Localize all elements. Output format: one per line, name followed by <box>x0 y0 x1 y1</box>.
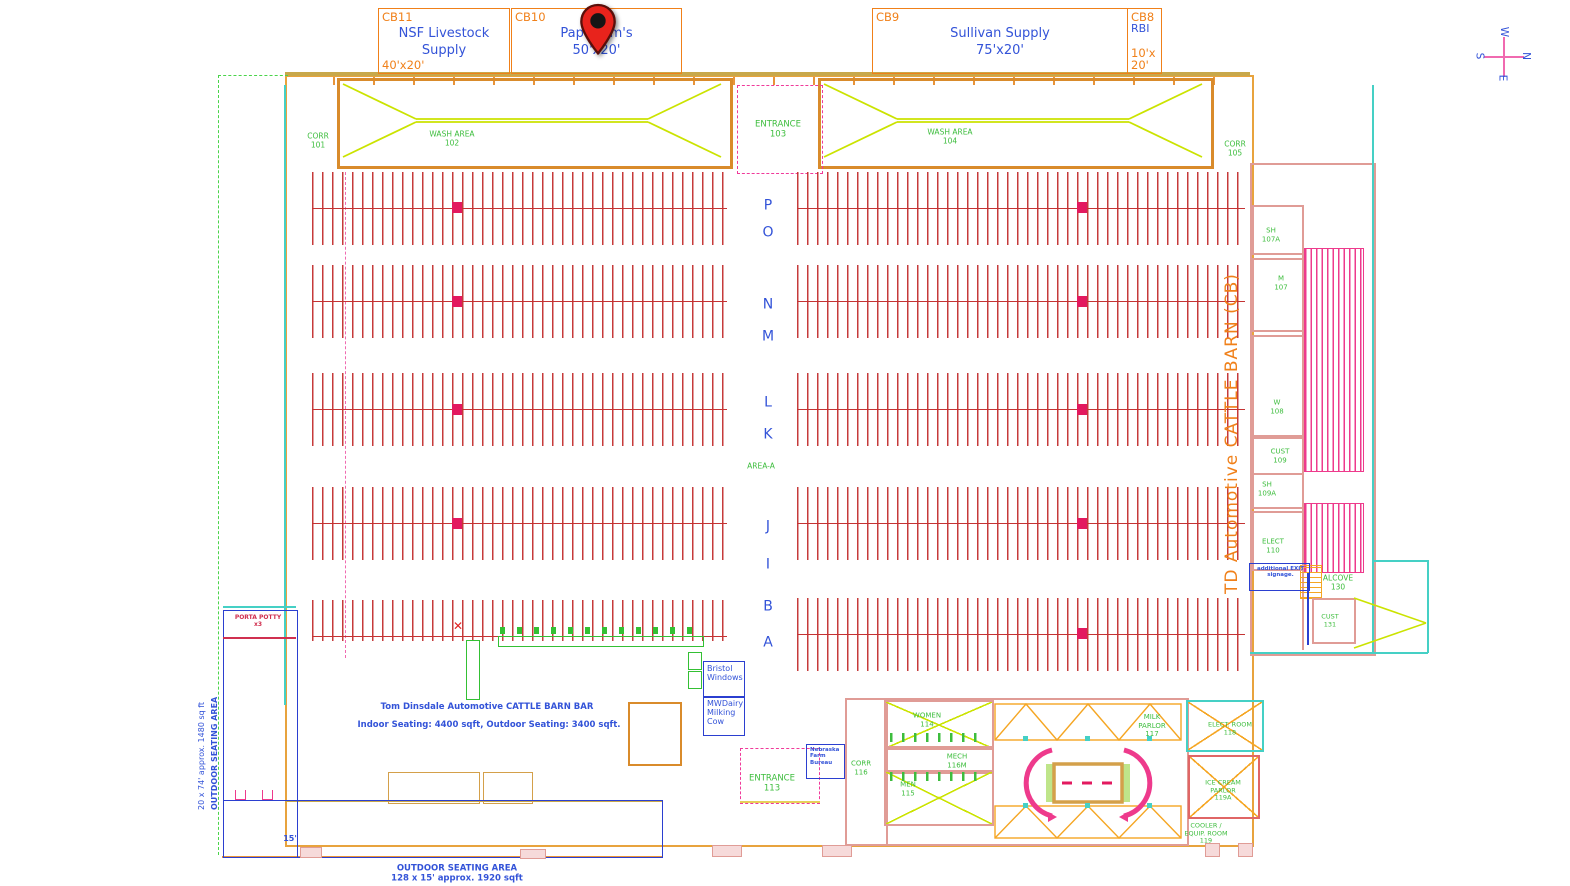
door-opening <box>520 849 546 859</box>
outer-cyan-wall-top-right <box>1372 560 1428 562</box>
entrance-103-label: ENTRANCE103 <box>755 110 801 141</box>
booth-bristol-windows[interactable]: Bristol Windows <box>703 661 745 698</box>
service-counter <box>688 652 702 670</box>
bleacher-seating-upper <box>1304 248 1364 472</box>
booth-id: CB11 <box>382 10 413 24</box>
porta-potty-label: PORTA POTTY x3 <box>235 614 281 628</box>
cyan-divider <box>223 606 296 608</box>
elect-110-label: ELECT110 <box>1262 529 1284 554</box>
vestibule-room <box>628 702 682 766</box>
booth-mwdairy-milking-cow[interactable]: MWDairy Milking Cow <box>703 696 745 736</box>
stall-post-marker <box>452 202 462 213</box>
mech-116m-label: MECH116M <box>947 744 968 769</box>
bar-seating-info: Indoor Seating: 4400 sqft, Outdoor Seati… <box>357 720 620 730</box>
door-opening <box>822 845 852 857</box>
booth-name: Sullivan Supply 75'x20' <box>873 26 1127 59</box>
compass-west: W <box>1498 27 1510 37</box>
w-108-label: W108 <box>1270 390 1283 415</box>
women-114-label: WOMEN114 <box>913 703 941 728</box>
sh-107a-label: SH107A <box>1262 218 1280 243</box>
booth-size: 10'x 20' <box>1131 47 1156 72</box>
entrance-113-threshold <box>740 801 820 803</box>
booth-id: CB10 <box>515 10 546 24</box>
compass-axis-v <box>1503 37 1505 77</box>
planter <box>262 790 273 800</box>
corr-116-label: CORR116 <box>851 751 871 776</box>
vendor-booth-cb8[interactable]: CB8 RBI 10'x 20' <box>1127 8 1162 74</box>
wash-area-104-roof <box>821 81 1205 160</box>
cattle-barn-floor-plan: CB11 NSF Livestock Supply 40'x20' CB10 P… <box>0 0 1570 886</box>
stall-post-marker <box>452 404 462 415</box>
area-a-label: AREA-A <box>747 462 775 471</box>
compass-south: S <box>1473 53 1485 60</box>
alcove-roof-lines <box>1352 596 1428 652</box>
stall-post-marker <box>1077 518 1087 529</box>
wash-area-102-label: WASH AREA102 <box>429 121 474 148</box>
door-opening <box>300 847 322 858</box>
wash-area-104-label: WASH AREA104 <box>927 119 972 146</box>
cooler-equip-room-119-label: COOLER / EQUIP. ROOM119 <box>1184 814 1227 845</box>
outer-cyan-wall-right <box>1372 85 1374 652</box>
vendor-booth-cb11[interactable]: CB11 NSF Livestock Supply 40'x20' <box>378 8 510 74</box>
row-letter-p: P <box>764 198 772 215</box>
bar-counter-side <box>466 640 480 700</box>
entrance-113-label: ENTRANCE113 <box>749 764 795 795</box>
wash-area-102-room <box>337 78 733 169</box>
cust-109-label: CUST109 <box>1271 439 1290 464</box>
location-pin[interactable] <box>578 3 618 57</box>
stall-row-band <box>312 373 727 446</box>
alcove-130-label: ALCOVE130 <box>1323 565 1353 592</box>
row-letter-m: M <box>762 329 774 346</box>
stall-row-band <box>797 487 1245 560</box>
barn-side-label: TD Automotive CATTLE BARN (CB) <box>1222 192 1246 594</box>
additional-exit-signage: additional EXIT signage. <box>1249 563 1310 591</box>
bar-title: Tom Dinsdale Automotive CATTLE BARN BAR <box>381 702 594 712</box>
sh-109a-label: SH109A <box>1258 472 1276 497</box>
row-letter-n: N <box>763 297 773 314</box>
row-letter-a: A <box>763 635 773 652</box>
outer-cyan-wall-bottom <box>1250 652 1428 654</box>
men-115-label: MEN115 <box>900 772 916 797</box>
stall-row-band <box>312 487 727 560</box>
outdoor-seating-bottom-area <box>223 800 663 858</box>
stall-row-band <box>312 600 727 641</box>
outdoor-seating-left-label: 20 x 74' approx. 1480 sq ft OUTDOOR SEAT… <box>196 650 224 810</box>
wash-area-104-room <box>818 78 1214 169</box>
door-opening <box>1238 843 1253 857</box>
row-letter-o: O <box>762 225 773 242</box>
stall-row-band <box>797 373 1245 446</box>
door-opening <box>712 845 742 857</box>
stall-row-band <box>312 172 727 245</box>
stall-post-marker <box>1077 296 1087 307</box>
bar-stools <box>500 627 700 634</box>
cust-131-label: CUST131 <box>1321 605 1338 628</box>
bar-counter <box>498 636 704 647</box>
compass: W N E S <box>1476 26 1532 82</box>
restroom-fixtures <box>890 733 985 742</box>
compass-east: E <box>1496 75 1508 82</box>
green-dashed-boundary-top <box>218 75 288 76</box>
bleacher-seating-lower <box>1304 503 1364 573</box>
elect-room-118-label: ELECT. ROOM118 <box>1208 713 1252 736</box>
row-letter-b: B <box>763 599 773 616</box>
room-w-108 <box>1252 335 1304 437</box>
stall-row-band <box>797 265 1245 338</box>
row-letter-l: L <box>764 395 772 412</box>
m-107-label: M107 <box>1274 266 1287 291</box>
milk-parlor-117-label: MILK PARLOR117 <box>1138 705 1165 739</box>
dim-15ft-label: 15' <box>283 834 297 844</box>
stall-row-band <box>797 598 1245 671</box>
stall-row-band <box>797 172 1245 245</box>
stall-x-marker: ✕ <box>453 619 463 633</box>
row-letter-j: J <box>766 519 770 536</box>
booth-nebraska-farm-bureau[interactable]: Nebraska Farm Bureau <box>806 744 845 779</box>
stall-post-marker <box>1077 628 1087 639</box>
vendor-booth-cb9[interactable]: CB9 Sullivan Supply 75'x20' <box>872 8 1128 74</box>
booth-id: CB9 <box>876 10 899 24</box>
porta-potty-divider <box>223 637 296 639</box>
stall-post-marker <box>452 296 462 307</box>
corr-101-label: CORR101 <box>307 123 329 150</box>
compass-north: N <box>1520 52 1532 60</box>
stall-post-marker <box>452 518 462 529</box>
booth-name: RBI <box>1131 22 1149 35</box>
planter <box>235 790 246 800</box>
booth-size: 40'x20' <box>382 59 424 72</box>
booth-name: NSF Livestock Supply <box>379 26 509 59</box>
ice-cream-parlor-119a-label: ICE CREAM PARLOR119A <box>1205 771 1241 802</box>
corr-105-label: CORR105 <box>1224 131 1246 158</box>
outdoor-seating-bottom-label: OUTDOOR SEATING AREA128 x 15' approx. 19… <box>391 854 523 885</box>
wash-area-102-roof <box>340 81 724 160</box>
stall-row-band <box>312 265 727 338</box>
service-counter <box>688 671 702 689</box>
row-letter-k: K <box>763 427 772 444</box>
row-letter-i: I <box>766 557 770 574</box>
stall-post-marker <box>1077 202 1087 213</box>
stall-post-marker <box>1077 404 1087 415</box>
